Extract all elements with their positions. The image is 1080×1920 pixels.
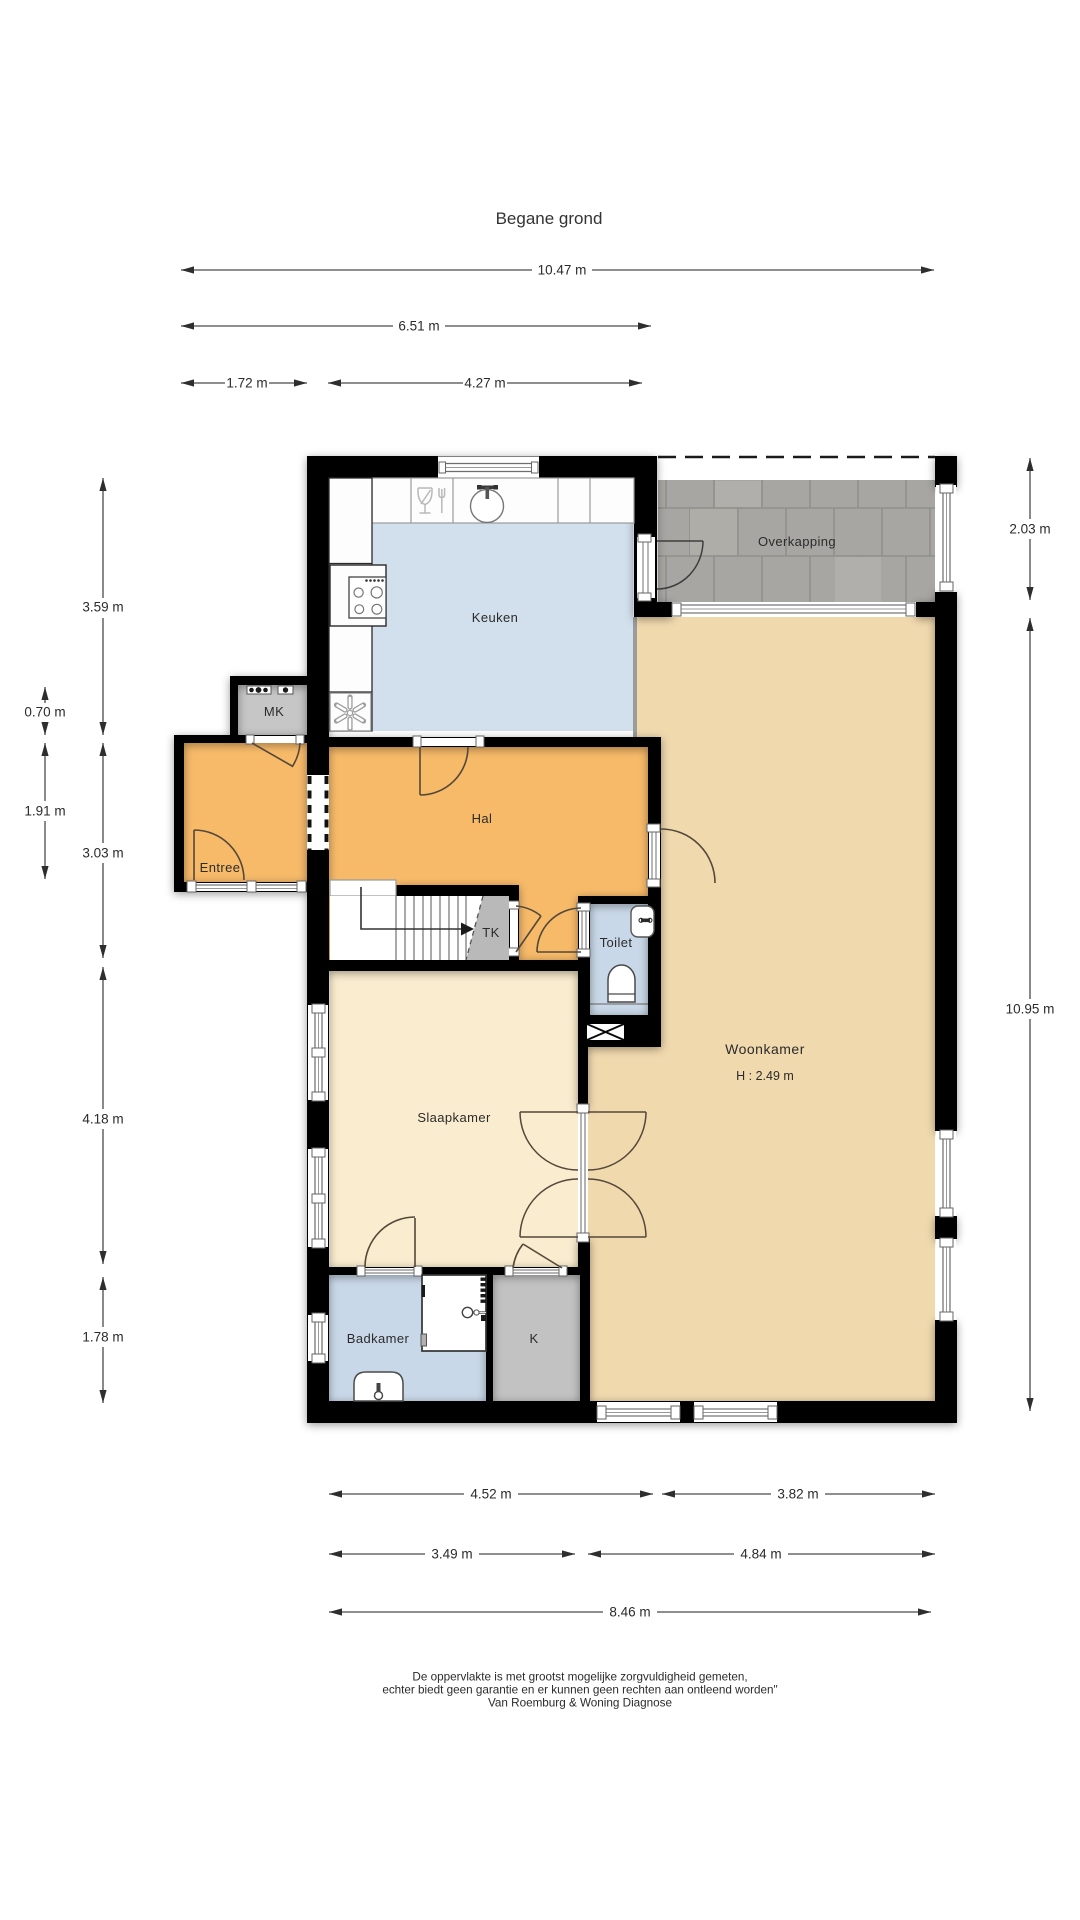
svg-text:TK: TK: [482, 925, 499, 940]
svg-text:10.95 m: 10.95 m: [1006, 1002, 1055, 1017]
svg-text:10.47 m: 10.47 m: [538, 263, 587, 278]
svg-text:4.52 m: 4.52 m: [470, 1487, 511, 1502]
svg-text:Toilet: Toilet: [600, 935, 633, 950]
svg-text:8.46 m: 8.46 m: [609, 1605, 650, 1620]
svg-text:3.82 m: 3.82 m: [777, 1487, 818, 1502]
svg-text:echter biedt geen garantie en: echter biedt geen garantie en er kunnen …: [382, 1684, 777, 1697]
svg-text:3.03 m: 3.03 m: [82, 846, 123, 861]
svg-text:4.84 m: 4.84 m: [740, 1547, 781, 1562]
svg-text:Badkamer: Badkamer: [347, 1331, 410, 1346]
svg-text:0.70 m: 0.70 m: [24, 705, 65, 720]
svg-text:Slaapkamer: Slaapkamer: [417, 1110, 491, 1125]
svg-text:1.72 m: 1.72 m: [226, 376, 267, 391]
svg-text:1.78 m: 1.78 m: [82, 1330, 123, 1345]
svg-text:Woonkamer: Woonkamer: [725, 1041, 805, 1057]
svg-text:1.91 m: 1.91 m: [24, 804, 65, 819]
svg-text:K: K: [529, 1331, 538, 1346]
svg-text:6.51 m: 6.51 m: [398, 319, 439, 334]
svg-text:Begane grond: Begane grond: [496, 209, 603, 228]
svg-text:2.03 m: 2.03 m: [1009, 522, 1050, 537]
svg-text:3.49 m: 3.49 m: [431, 1547, 472, 1562]
svg-text:Overkapping: Overkapping: [758, 534, 836, 549]
svg-text:Van Roemburg & Woning Diagnose: Van Roemburg & Woning Diagnose: [488, 1696, 672, 1709]
svg-text:4.27 m: 4.27 m: [464, 376, 505, 391]
svg-text:4.18 m: 4.18 m: [82, 1112, 123, 1127]
svg-text:Entree: Entree: [200, 860, 241, 875]
svg-text:Keuken: Keuken: [472, 610, 519, 625]
svg-text:Hal: Hal: [472, 811, 493, 826]
svg-text:MK: MK: [264, 704, 284, 719]
svg-text:H : 2.49 m: H : 2.49 m: [736, 1069, 794, 1083]
svg-text:3.59 m: 3.59 m: [82, 600, 123, 615]
svg-text:De oppervlakte is met grootst: De oppervlakte is met grootst mogelijke …: [412, 1670, 747, 1683]
